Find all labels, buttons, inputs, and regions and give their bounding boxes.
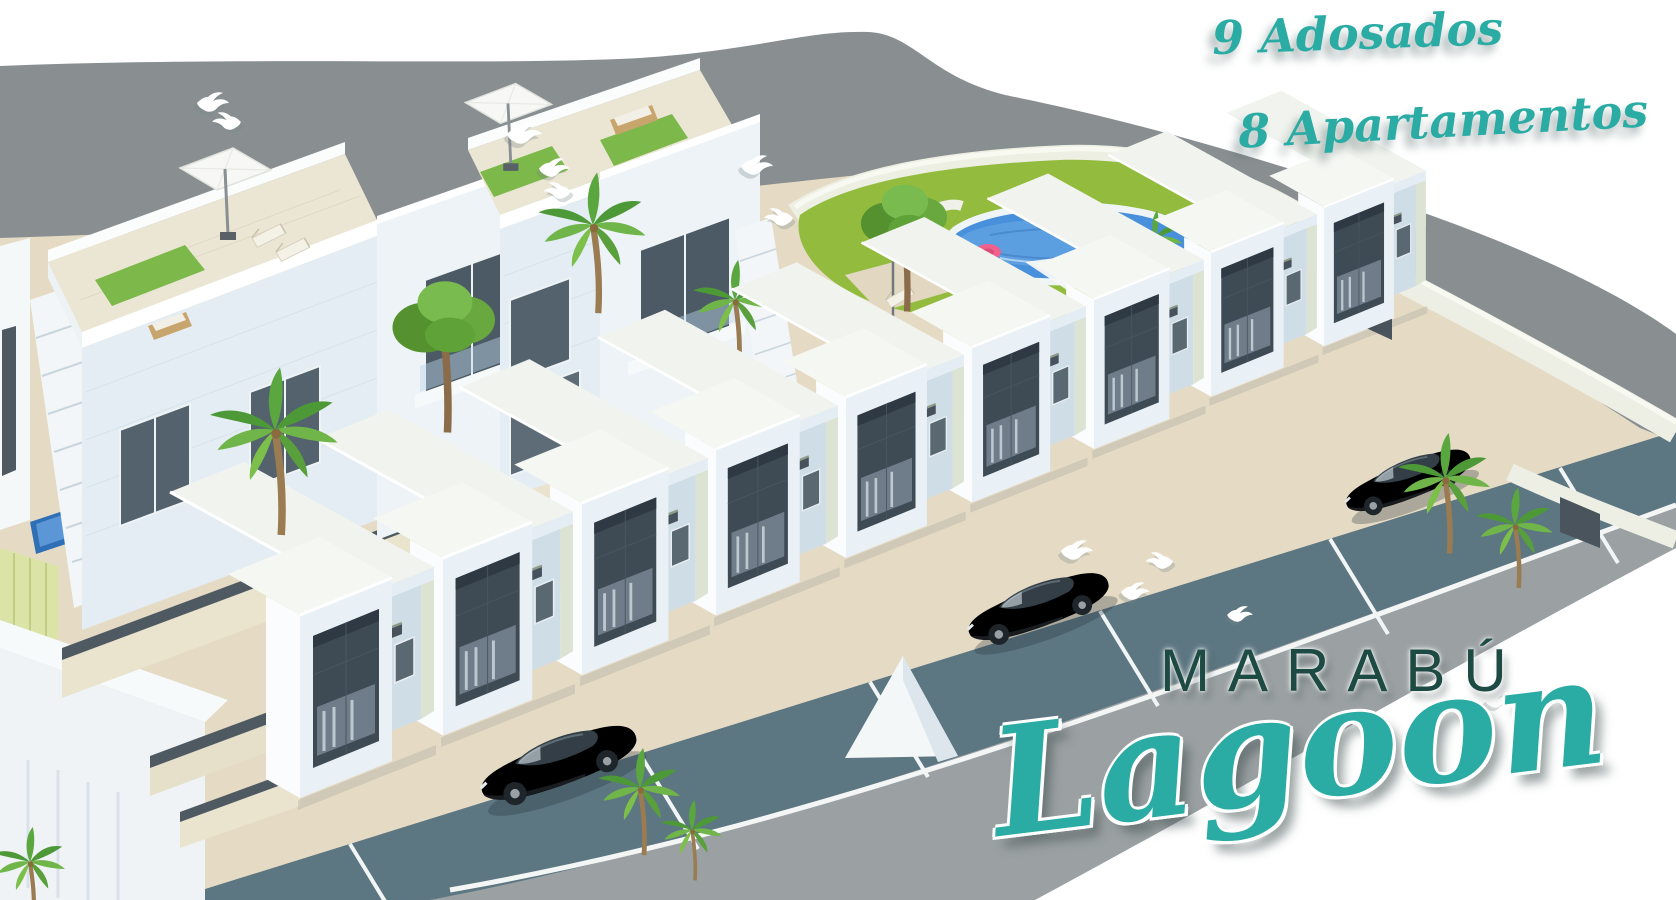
adosados-label: 9 Adosados	[1211, 1, 1504, 65]
render-stage: #car-silver .carbody{fill:#C6CACC;} #car…	[0, 0, 1676, 900]
